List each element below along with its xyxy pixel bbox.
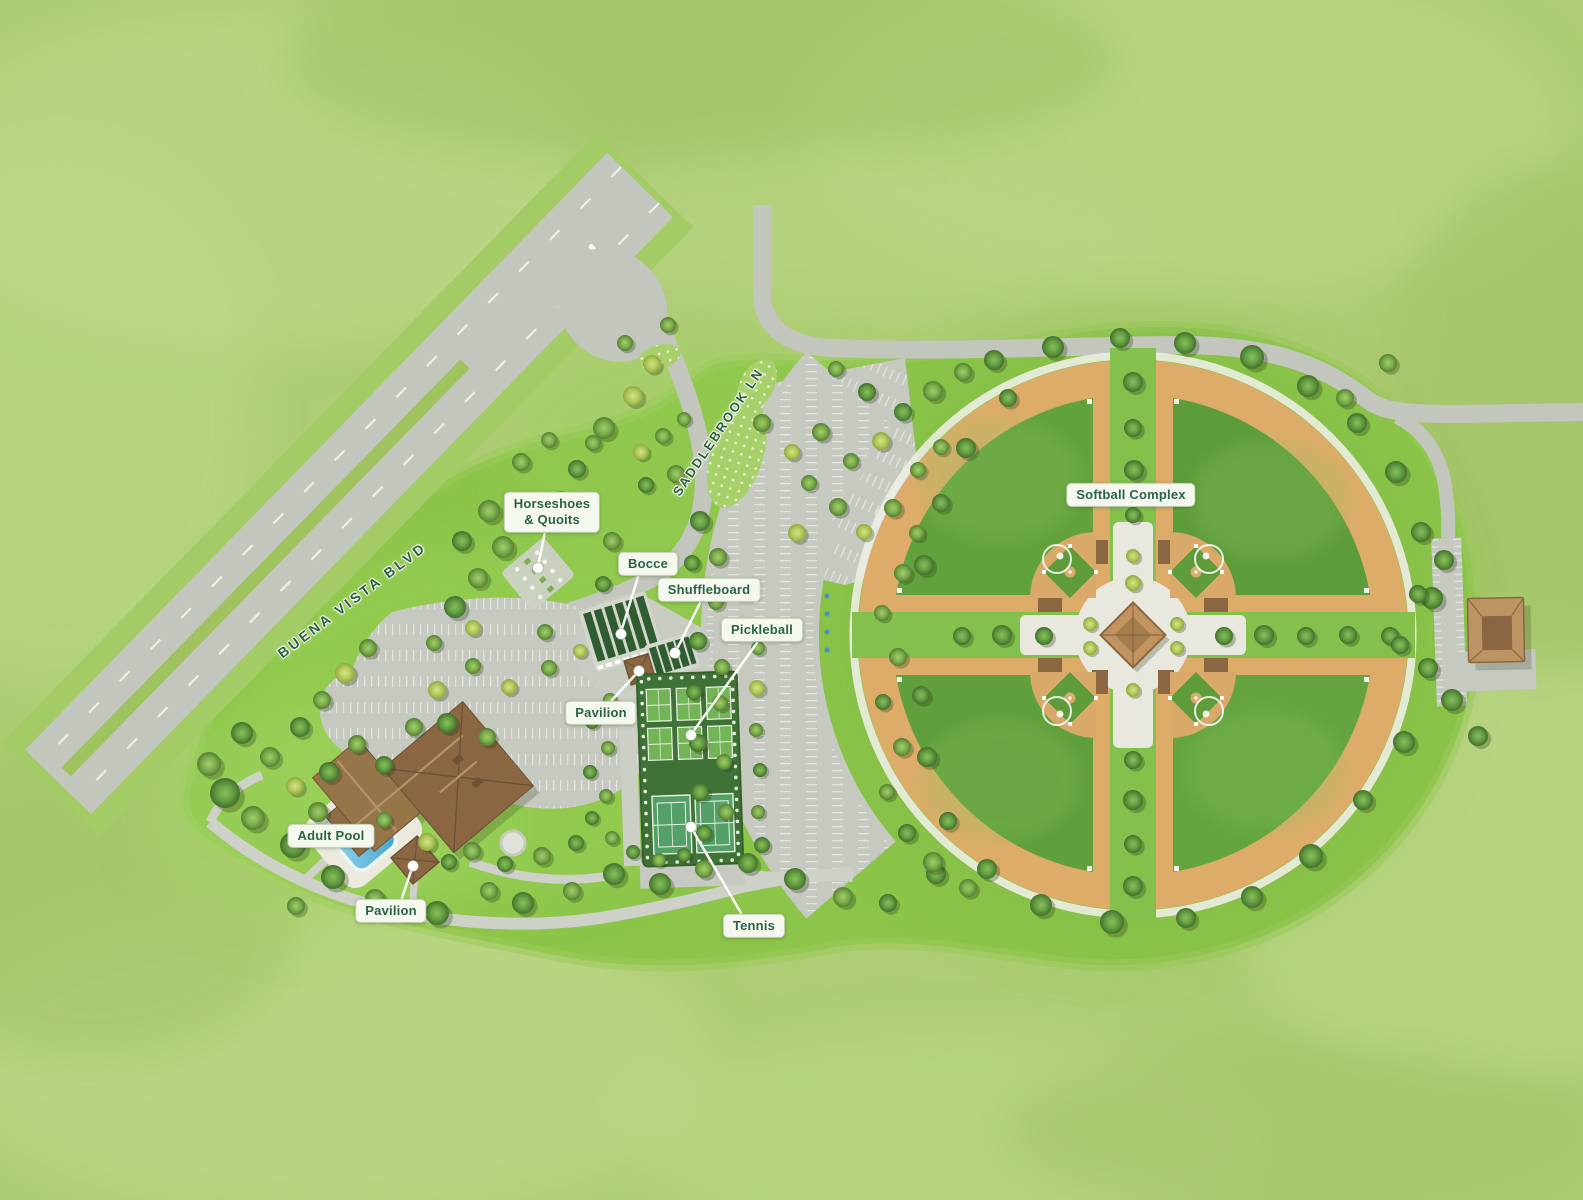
label-pickleball: Pickleball [721, 618, 803, 642]
label-pavilion-upper: Pavilion [565, 701, 636, 725]
label-adult-pool: Adult Pool [288, 824, 375, 848]
label-pavilion-lower: Pavilion [355, 899, 426, 923]
label-softball-complex: Softball Complex [1066, 483, 1195, 507]
park-map: Horseshoes & Quoits Bocce Shuffleboard P… [0, 0, 1583, 1200]
label-shuffleboard: Shuffleboard [658, 578, 761, 602]
label-bocce: Bocce [618, 552, 678, 576]
maintenance-building [1467, 597, 1531, 670]
label-tennis: Tennis [723, 914, 785, 938]
label-horseshoes-quoits: Horseshoes & Quoits [504, 492, 600, 533]
map-artwork [0, 0, 1583, 1200]
